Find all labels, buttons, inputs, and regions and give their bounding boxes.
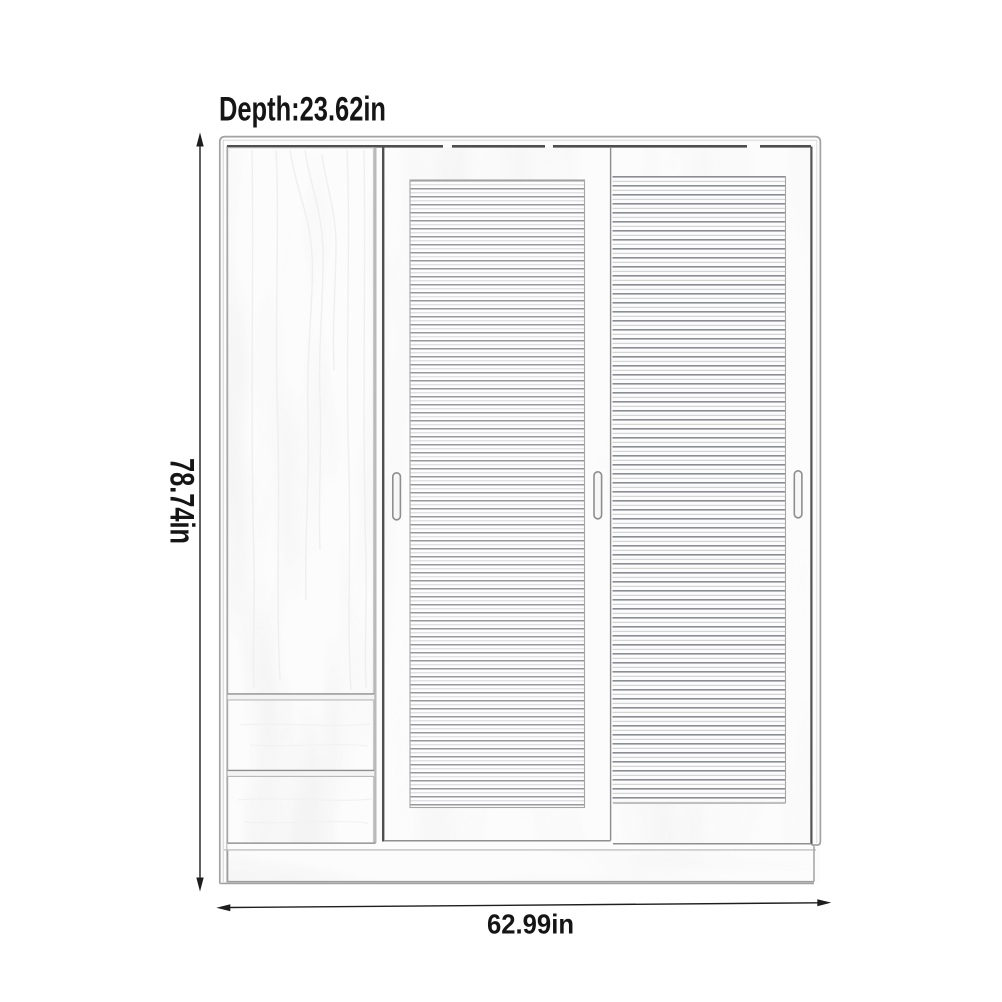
svg-text:78.74in: 78.74in (163, 458, 201, 544)
svg-text:Depth:23.62in: Depth:23.62in (219, 91, 386, 129)
svg-text:62.99in: 62.99in (487, 909, 574, 940)
